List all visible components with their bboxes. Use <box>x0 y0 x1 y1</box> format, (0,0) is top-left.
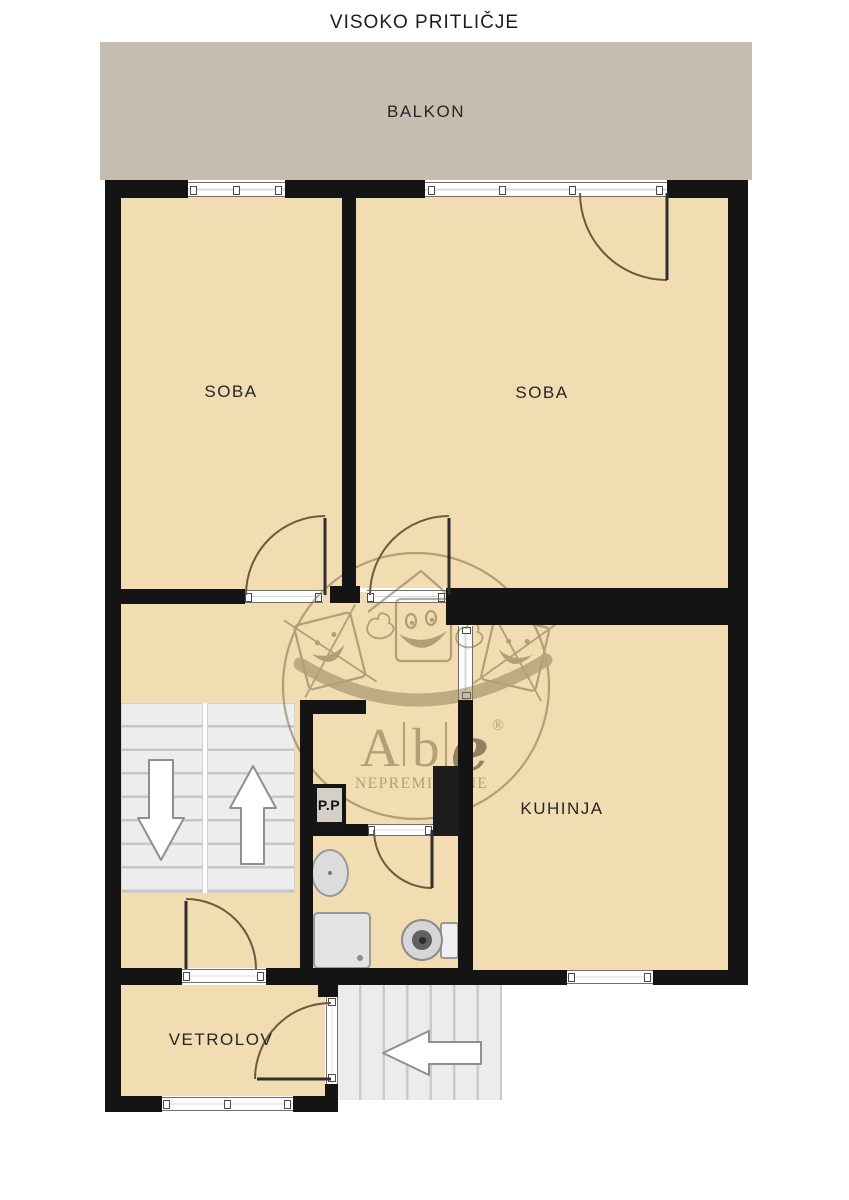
door-symbols <box>0 0 849 1200</box>
door-arc-soba-left <box>246 516 325 595</box>
room-label-soba-left: SOBA <box>204 382 257 402</box>
room-label-pp: P.P <box>318 797 340 813</box>
room-label-vetrolov: VETROLOV <box>169 1030 274 1050</box>
door-arc-hall <box>186 899 256 969</box>
door-arc-soba-right <box>370 516 449 595</box>
room-label-kuhinja: KUHINJA <box>520 799 603 819</box>
room-label-soba-right: SOBA <box>515 383 568 403</box>
floor-plan: VISOKO PRITLIČJE <box>0 0 849 1200</box>
door-arc-bathroom <box>374 830 432 888</box>
door-arc-balcony <box>580 193 667 280</box>
room-label-balkon: BALKON <box>387 102 465 122</box>
